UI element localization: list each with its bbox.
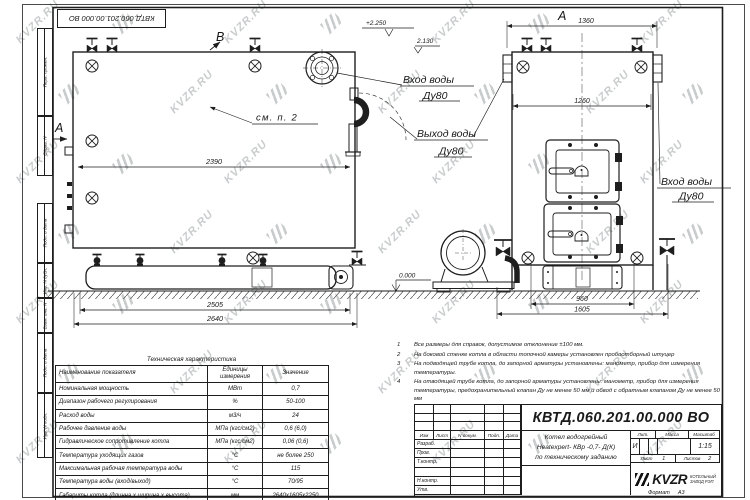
lifting-lug-icon [86, 192, 98, 204]
tech-cell-value: 50-100 [263, 396, 329, 409]
kvzr-logo-text: KVZR [652, 472, 687, 487]
note-number: 2 [393, 351, 414, 360]
elevation-label: +2.250 [366, 20, 386, 27]
tech-table-title: Техническая характеристика [55, 356, 328, 363]
top-stamp-number: КВТД.060.201.00.000 ВО [69, 14, 155, 23]
tech-cell-units: МПа (кгс/см2) [208, 436, 263, 449]
doc-number: КВТД.060.201.00.000 ВО [533, 410, 710, 426]
tech-cell-name: Температура воды (вход/выход) [56, 476, 208, 489]
note-number: 4 [393, 378, 414, 404]
water-inlet-callout-front: Вход воды Ду80 [657, 83, 731, 203]
pump [329, 266, 353, 289]
valve-icon [87, 39, 98, 53]
dim-label: 1605 [574, 307, 590, 314]
note-text: На подводящей трубе котла, до запорной а… [414, 360, 723, 377]
margin-box-podp-data-1: Подп. и дата [37, 203, 53, 263]
tech-cell-units: м3/ч [208, 409, 263, 422]
view-arrow-a: А [52, 121, 67, 139]
dim-label: 2505 [206, 300, 224, 309]
outlet-flange-left [503, 55, 512, 82]
note-text: На отводящей трубе котла, до запорной ар… [414, 378, 723, 404]
tech-cell-value: 0,7 [263, 383, 329, 396]
title-block: КВТД.060.201.00.000 ВО Изм Лист N докум.… [414, 404, 722, 497]
upper-door [546, 140, 622, 202]
drain-valve-icon [218, 255, 227, 267]
dim-1360: А 1360 [507, 9, 657, 48]
tech-row: Диапазон рабочего регулирования%50-100 [56, 396, 329, 409]
tech-cell-value: 0,6 (6,0) [263, 422, 329, 435]
tech-row: Максимальная рабочая температура воды°С1… [56, 462, 329, 475]
col-data: Дата [504, 431, 521, 440]
notes-list: 1Все размеры для справок, допустимое отк… [393, 341, 723, 405]
tech-header-name: Наименование показателя [56, 366, 208, 383]
front-base [543, 266, 622, 289]
row-prov: Пров. [415, 449, 451, 458]
tech-cell-value: 115 [263, 462, 329, 475]
see-note-callout: см. п. 2 [210, 107, 318, 124]
elevation-top: +2.250 [362, 20, 414, 36]
part-name-line2: Heatexpert- КВр -0,7- Д(К) [522, 443, 630, 453]
kvzr-logo-caption: КОТЕЛЬНЫЙ ЗАВОД РЭП [690, 474, 716, 485]
inlet-dn: Ду80 [678, 191, 704, 203]
elevation-zero: 0.000 [392, 273, 431, 292]
view-label-a: А [54, 121, 63, 135]
dim-2390: 2390 [78, 157, 350, 167]
sheet-cell: Лист 1 [631, 455, 676, 463]
tech-cell-name: Максимальная рабочая температура воды [56, 462, 208, 475]
note-item: 4На отводящей трубе котла, до запорной а… [393, 378, 723, 404]
tech-cell-name: Температура уходящих газов [56, 449, 208, 462]
col-list: Лист [434, 431, 451, 440]
tech-cell-name: Габариты котла (длинна х ширина х высота… [56, 489, 208, 500]
note-item: 1Все размеры для справок, допустимое отк… [393, 341, 723, 350]
lifting-lug-icon [631, 252, 643, 264]
lit-header: Лит. [631, 431, 656, 439]
note-number: 3 [393, 360, 414, 377]
margin-box-sprav: Справ. N [37, 116, 53, 176]
kvzr-logo-icon [635, 473, 649, 486]
scale-header: Масштаб [689, 431, 720, 439]
tech-cell-name: Расход воды [56, 409, 208, 422]
tech-row: Температура воды (вход/выход)°С70/95 [56, 476, 329, 489]
tech-cell-units: % [208, 396, 263, 409]
lifting-lug-icon [247, 252, 259, 264]
dim-label: 1360 [578, 18, 594, 25]
inlet-dn: Ду80 [422, 90, 448, 102]
drawing-sheet: KVZR.RUKVZR.RUKVZR.RUKVZR.RUKVZR.RUKVZR.… [0, 0, 750, 500]
valve-icon [541, 39, 552, 53]
tech-cell-value: 0,06 (0,6) [263, 436, 329, 449]
note-number: 1 [393, 341, 414, 350]
lifting-lug-icon [249, 60, 261, 72]
tech-cell-units: МПа (кгс/см2) [208, 422, 263, 435]
tech-cell-units: МВт [208, 383, 263, 396]
col-izm: Изм [415, 431, 434, 440]
tech-cell-name: Гидравлическое сопротивление котла [56, 436, 208, 449]
tech-row: Гидравлическое сопротивление котлаМПа (к… [56, 436, 329, 449]
tech-cell-units: мм [208, 489, 263, 500]
tech-row: Рабочее давление водыМПа (кгс/см2)0,6 (6… [56, 422, 329, 435]
tech-cell-name: Диапазон рабочего регулирования [56, 396, 208, 409]
tech-cell-name: Номинальная мощность [56, 383, 208, 396]
mass-value [658, 439, 691, 455]
tech-header-row: Наименование показателя Единицы измерени… [56, 366, 329, 383]
drain-valve-icon [136, 255, 145, 267]
margin-box-podp-data-2: Подп. и дата [37, 333, 53, 393]
view-label-b: В [216, 30, 224, 44]
valve-icon [250, 39, 261, 53]
valve-icon [632, 39, 643, 53]
tech-cell-value: 24 [263, 409, 329, 422]
view-label-front: А [557, 9, 566, 23]
view-arrow-b: В [210, 30, 224, 50]
dim-label: 2640 [206, 314, 223, 323]
inlet-flange-right [653, 55, 662, 82]
inlet-label: Вход воды [403, 74, 454, 86]
tech-row: Температура уходящих газов°Сне более 250 [56, 449, 329, 462]
row-utv: Утв. [415, 486, 451, 495]
lifting-lug-icon [517, 61, 529, 73]
sheets-cell: Листов 2 [676, 455, 720, 463]
lit-value: И [631, 439, 640, 455]
tech-header-value: Значение [263, 366, 329, 383]
blower-fan [433, 229, 517, 292]
tech-cell-value: не более 250 [263, 449, 329, 462]
lifting-lug-icon [86, 60, 98, 72]
format-label: ФорматА3 [648, 490, 685, 496]
row-tkontr: Т.контр. [415, 458, 451, 467]
dim-label: 2390 [205, 157, 222, 166]
tech-header-units: Единицы измерения [208, 366, 263, 383]
part-name-line3: по техническому заданию [522, 453, 630, 463]
signature-grid: Изм Лист N докум. Подп. Дата Разраб. Про… [415, 431, 521, 495]
margin-box-inv-dubl: Инв. N дубл. [37, 263, 53, 298]
margin-box-vzam-inv: Взам. инв. N [37, 298, 53, 333]
dim-960: 960 [531, 263, 634, 309]
tech-cell-units: °С [208, 462, 263, 475]
doc-number-cell: КВТД.060.201.00.000 ВО [521, 405, 720, 431]
elevation-label: 2.130 [416, 38, 434, 45]
tech-cell-name: Рабочее давление воды [56, 422, 208, 435]
lifting-lug-icon [522, 252, 534, 264]
drain-valve-icon [259, 255, 268, 267]
outlet-pipe [345, 88, 406, 156]
tech-cell-value: 70/95 [263, 476, 329, 489]
mass-header: Масса [656, 431, 689, 439]
front-view: А 1360 1260 960 1605 [497, 9, 731, 319]
tech-cell-value: 2640х1605х2250 [263, 489, 329, 500]
dim-label: 1260 [574, 98, 590, 105]
inlet-flange [303, 49, 341, 87]
outlet-dn: Ду80 [438, 146, 464, 158]
tech-cell-units: °С [208, 476, 263, 489]
scale-value: 1:15 [691, 439, 720, 455]
lifting-lug-icon [86, 135, 98, 147]
part-name-cell: Котел водогрейный Heatexpert- КВр -0,7- … [521, 431, 631, 495]
dim-label: 960 [576, 296, 588, 303]
ground-hatch [48, 291, 700, 299]
valve-icon [522, 39, 533, 53]
valve-icon [107, 39, 118, 53]
elevation-mid: 2.130 [414, 38, 440, 53]
col-doc: N докум. [451, 431, 485, 440]
note-text: На боковой стенке котла в области топочн… [414, 351, 723, 360]
lower-door [544, 204, 623, 262]
tech-row: Габариты котла (длинна х ширина х высота… [56, 489, 329, 500]
row-nkontr: Н.контр. [415, 477, 451, 486]
elevation-label: 0.000 [399, 273, 416, 280]
fan-valve [494, 240, 517, 283]
row-razrab: Разраб. [415, 440, 451, 449]
drain-valve-icon [93, 255, 102, 267]
see-note-label: см. п. 2 [256, 113, 298, 124]
tech-row: Расход водым3/ч24 [56, 409, 329, 422]
tech-cell-units: °С [208, 449, 263, 462]
revision-grid [415, 405, 521, 431]
col-podp: Подп. [485, 431, 504, 440]
inlet-label: Вход воды [661, 176, 712, 188]
note-item: 3На подводящей трубе котла, до запорной … [393, 360, 723, 377]
approval-section: Лит. Масса Масштаб И 1:15 Лист 1 Листов … [631, 431, 720, 495]
margin-box-inv-podl: Инв. N подл. [37, 393, 53, 458]
side-valve [659, 239, 675, 290]
part-name-line1: Котел водогрейный [522, 433, 630, 443]
note-item: 2На боковой стенке котла в области топоч… [393, 351, 723, 360]
tech-row: Номинальная мощностьМВт0,7 [56, 383, 329, 396]
lifting-lug-icon [635, 61, 647, 73]
outlet-label: Выход воды [417, 128, 476, 140]
note-text: Все размеры для справок, допустимое откл… [414, 341, 723, 350]
top-stamp: КВТД.060.201.00.000 ВО [57, 9, 166, 28]
valve-icon [352, 252, 363, 266]
margin-box-perv-primen: Перв. примен. [37, 28, 53, 116]
tech-table: Наименование показателя Единицы измерени… [55, 365, 329, 500]
